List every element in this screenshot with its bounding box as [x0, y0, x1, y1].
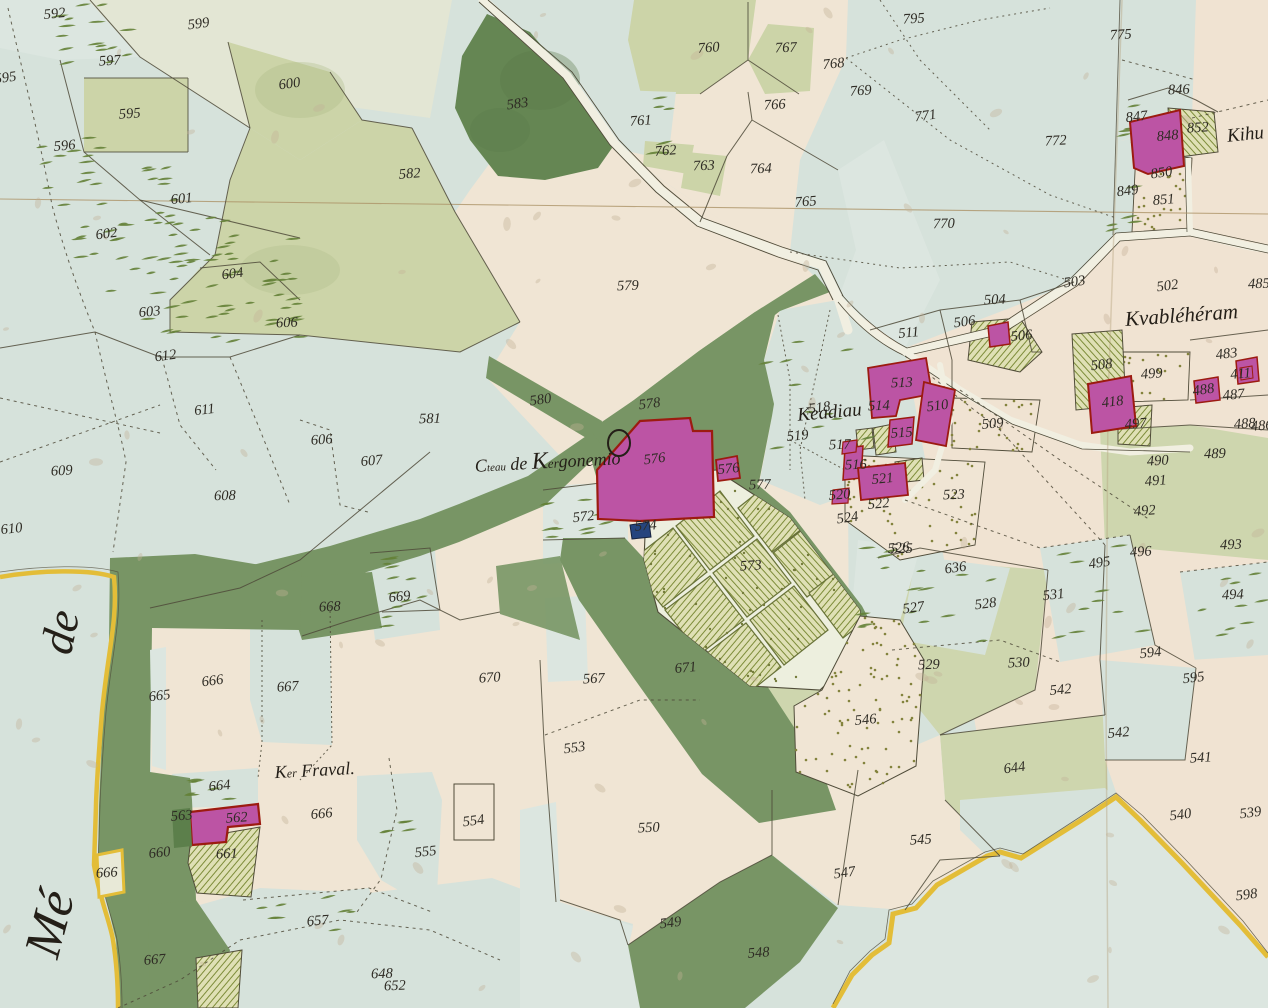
- svg-text:601: 601: [170, 190, 193, 208]
- svg-text:539: 539: [1239, 804, 1263, 823]
- svg-text:666: 666: [201, 672, 225, 691]
- svg-text:495: 495: [1088, 554, 1112, 573]
- svg-text:487: 487: [1222, 386, 1246, 404]
- svg-text:666: 666: [95, 864, 118, 881]
- svg-text:540: 540: [1169, 806, 1193, 825]
- svg-text:513: 513: [891, 375, 913, 392]
- svg-text:771: 771: [914, 107, 938, 126]
- svg-text:578: 578: [638, 395, 662, 414]
- svg-text:596: 596: [53, 137, 77, 155]
- svg-text:599: 599: [187, 15, 211, 34]
- svg-text:671: 671: [674, 659, 697, 677]
- svg-text:763: 763: [693, 158, 715, 175]
- svg-text:657: 657: [306, 912, 330, 930]
- svg-text:612: 612: [154, 347, 178, 366]
- svg-text:504: 504: [984, 292, 1006, 309]
- svg-text:660: 660: [148, 844, 172, 862]
- svg-text:595: 595: [0, 69, 17, 88]
- svg-text:577: 577: [749, 477, 772, 494]
- svg-text:760: 760: [697, 39, 721, 57]
- svg-text:508: 508: [1090, 356, 1114, 374]
- svg-text:499: 499: [1140, 365, 1164, 382]
- svg-text:531: 531: [1042, 586, 1065, 604]
- svg-text:795: 795: [902, 10, 925, 27]
- svg-text:519: 519: [786, 427, 810, 445]
- svg-text:670: 670: [478, 669, 502, 687]
- svg-text:606: 606: [310, 431, 334, 449]
- svg-text:562: 562: [225, 809, 248, 826]
- svg-text:503: 503: [1063, 273, 1087, 292]
- svg-text:547: 547: [833, 864, 857, 883]
- svg-text:852: 852: [1186, 119, 1209, 136]
- svg-text:524: 524: [836, 509, 860, 528]
- svg-text:523: 523: [943, 487, 965, 504]
- svg-text:766: 766: [763, 96, 786, 113]
- svg-text:604: 604: [221, 265, 245, 284]
- svg-text:762: 762: [654, 142, 677, 160]
- svg-text:851: 851: [1152, 191, 1175, 209]
- svg-text:768: 768: [822, 55, 846, 73]
- svg-text:775: 775: [1109, 26, 1132, 43]
- svg-text:648: 648: [371, 966, 394, 982]
- svg-text:563: 563: [170, 807, 193, 825]
- svg-text:767: 767: [775, 40, 798, 57]
- svg-text:636: 636: [944, 559, 968, 578]
- svg-text:595: 595: [118, 105, 141, 123]
- svg-text:506: 506: [1010, 327, 1034, 345]
- svg-text:549: 549: [659, 914, 683, 933]
- svg-text:666: 666: [310, 805, 334, 823]
- svg-text:667: 667: [143, 951, 167, 969]
- svg-text:573: 573: [739, 557, 762, 574]
- svg-text:522: 522: [867, 495, 890, 513]
- svg-text:515: 515: [890, 424, 913, 442]
- svg-text:846: 846: [1168, 82, 1191, 99]
- svg-text:849: 849: [1116, 182, 1140, 201]
- svg-text:528: 528: [974, 595, 998, 614]
- svg-text:Ker Fraval.: Ker Fraval.: [273, 758, 355, 782]
- svg-text:489: 489: [1204, 446, 1227, 463]
- svg-text:542: 542: [1049, 681, 1072, 699]
- svg-text:579: 579: [617, 278, 640, 295]
- svg-text:608: 608: [214, 488, 237, 505]
- svg-text:496: 496: [1129, 543, 1152, 560]
- svg-text:514: 514: [868, 398, 890, 415]
- svg-text:592: 592: [43, 5, 66, 23]
- svg-text:609: 609: [50, 462, 73, 479]
- svg-text:594: 594: [1139, 644, 1163, 662]
- svg-text:545: 545: [909, 831, 932, 848]
- svg-text:765: 765: [794, 193, 817, 211]
- svg-text:611: 611: [193, 401, 215, 419]
- svg-text:517: 517: [829, 437, 852, 454]
- svg-text:483: 483: [1215, 345, 1238, 363]
- svg-text:607: 607: [360, 452, 384, 470]
- svg-text:644: 644: [1003, 759, 1027, 778]
- svg-text:600: 600: [278, 75, 302, 94]
- svg-text:553: 553: [563, 739, 587, 758]
- svg-text:529: 529: [918, 657, 941, 674]
- svg-text:595: 595: [1182, 669, 1205, 687]
- svg-text:546: 546: [854, 711, 878, 729]
- svg-text:510: 510: [926, 397, 950, 416]
- svg-text:486: 486: [1250, 417, 1268, 434]
- svg-text:506: 506: [953, 313, 977, 332]
- svg-text:492: 492: [1133, 502, 1156, 519]
- svg-text:668: 668: [319, 598, 342, 615]
- svg-text:581: 581: [419, 411, 441, 427]
- svg-text:574: 574: [634, 517, 657, 534]
- svg-text:848: 848: [1156, 127, 1180, 145]
- svg-text:572: 572: [572, 508, 595, 526]
- svg-text:411: 411: [1230, 365, 1252, 383]
- svg-text:602: 602: [95, 225, 119, 244]
- svg-text:850: 850: [1150, 164, 1174, 183]
- svg-text:502: 502: [1156, 277, 1180, 296]
- svg-text:511: 511: [898, 324, 920, 342]
- svg-text:770: 770: [933, 216, 956, 232]
- svg-text:769: 769: [849, 82, 873, 99]
- svg-text:669: 669: [388, 588, 412, 606]
- svg-text:761: 761: [629, 112, 652, 129]
- svg-text:526: 526: [887, 539, 911, 557]
- svg-text:610: 610: [0, 520, 24, 538]
- svg-text:548: 548: [747, 944, 771, 962]
- svg-text:485: 485: [1248, 276, 1268, 293]
- svg-text:576: 576: [717, 460, 741, 478]
- svg-text:603: 603: [138, 303, 161, 321]
- svg-text:527: 527: [902, 598, 927, 617]
- svg-text:847: 847: [1125, 108, 1149, 126]
- svg-text:583: 583: [506, 95, 530, 114]
- svg-text:516: 516: [845, 457, 868, 474]
- svg-text:493: 493: [1220, 537, 1242, 554]
- svg-text:665: 665: [148, 687, 171, 705]
- svg-text:488: 488: [1192, 381, 1217, 400]
- svg-text:667: 667: [276, 678, 299, 695]
- svg-text:764: 764: [750, 161, 772, 178]
- svg-text:494: 494: [1222, 587, 1244, 604]
- svg-text:491: 491: [1144, 472, 1167, 490]
- svg-text:541: 541: [1189, 749, 1212, 766]
- svg-text:598: 598: [1235, 886, 1259, 905]
- svg-text:509: 509: [981, 415, 1005, 433]
- svg-text:542: 542: [1107, 724, 1130, 742]
- svg-text:576: 576: [643, 450, 667, 469]
- svg-text:418: 418: [1101, 393, 1125, 411]
- svg-text:521: 521: [871, 470, 894, 488]
- svg-text:497: 497: [1124, 415, 1148, 433]
- svg-text:490: 490: [1146, 452, 1169, 469]
- svg-text:606: 606: [276, 315, 299, 332]
- svg-text:661: 661: [216, 846, 238, 863]
- svg-text:530: 530: [1008, 655, 1031, 672]
- svg-text:520: 520: [828, 486, 852, 504]
- svg-text:597: 597: [98, 52, 121, 69]
- svg-text:580: 580: [529, 391, 553, 410]
- svg-text:567: 567: [583, 670, 606, 687]
- svg-text:582: 582: [398, 165, 421, 183]
- svg-text:Kihu: Kihu: [1225, 122, 1265, 147]
- svg-text:550: 550: [638, 819, 661, 836]
- svg-text:555: 555: [414, 843, 437, 861]
- svg-text:554: 554: [462, 812, 486, 831]
- svg-text:772: 772: [1044, 132, 1067, 149]
- svg-text:664: 664: [208, 777, 231, 795]
